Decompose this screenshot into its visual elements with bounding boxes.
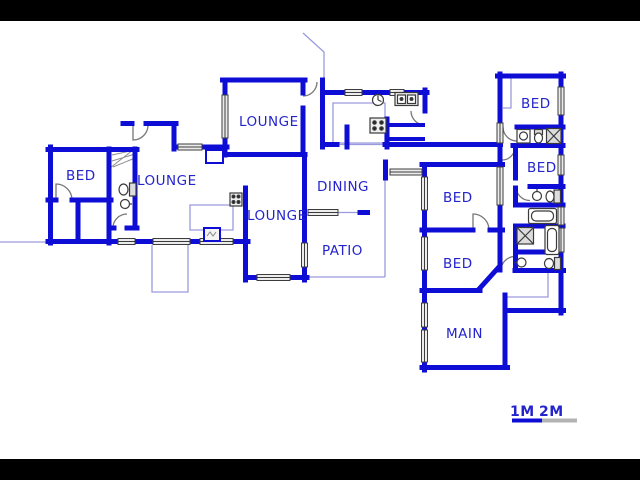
vanity-basin-icon (517, 130, 530, 144)
hob-icon (230, 193, 242, 206)
room-label-bed-right-lower: BED (527, 160, 557, 176)
shower-icon (517, 228, 534, 245)
room-label-bed-center-lower: BED (443, 256, 473, 272)
scale-label-2m: 2M (539, 404, 564, 420)
kitchen-counter-walls (390, 125, 423, 139)
basin-icon (121, 200, 133, 209)
window-glyph (153, 239, 190, 245)
top-letterbox (0, 0, 640, 21)
window-glyph (558, 155, 564, 175)
window-glyph (345, 90, 362, 96)
kitchen-tap-icon (373, 95, 384, 106)
room-label-bed-left: BED (66, 168, 96, 184)
room-label-patio: PATIO (322, 243, 363, 259)
room-label-lounge-center: LOUNGE (247, 208, 307, 224)
entry-hall-walls (123, 124, 227, 150)
window-glyph (422, 237, 428, 270)
window-glyph (178, 144, 202, 150)
bottom-letterbox (0, 459, 640, 480)
window-glyph (257, 275, 290, 281)
scale-bar: 1M 2M (510, 404, 577, 423)
double-sink-icon (395, 93, 418, 106)
room-label-main: MAIN (446, 326, 483, 342)
window-glyph (558, 87, 564, 115)
room-label-lounge-top: LOUNGE (239, 114, 299, 130)
window-glyph (497, 123, 503, 143)
window-glyph (558, 207, 564, 225)
window-glyph (390, 169, 422, 175)
toilet-icon (119, 183, 136, 196)
window-glyph (308, 210, 338, 216)
room-label-dining: DINING (317, 179, 369, 195)
window-glyph (497, 167, 503, 205)
scale-label-1m: 1M (510, 404, 535, 420)
cupboard-icon (206, 150, 223, 163)
basin-icon (533, 189, 542, 201)
window-glyph (118, 239, 135, 245)
stairs-glyph (110, 150, 135, 168)
window-glyph (222, 95, 228, 138)
scale-segment-1m (512, 419, 542, 423)
scale-segment-2m (542, 419, 577, 423)
bathtub-icon (545, 226, 559, 255)
toilet-icon (546, 190, 561, 203)
floorplan-drawing: BED LOUNGE LOUNGE LOUNGE DINING PATIO BE… (0, 0, 640, 480)
toilet-icon (545, 258, 561, 270)
shower-icon (547, 129, 562, 144)
room-label-bed-center-upper: BED (443, 190, 473, 206)
window-glyph (422, 177, 428, 210)
window-glyph (302, 243, 308, 267)
window-glyph (422, 303, 428, 327)
windows (118, 87, 564, 362)
room-label-lounge-left: LOUNGE (137, 173, 197, 189)
fireplace-icon (204, 228, 220, 241)
bathtub-icon (529, 209, 557, 224)
toilet-icon (535, 130, 543, 144)
stove-icon (370, 118, 386, 133)
room-label-bed-right-upper: BED (521, 96, 551, 112)
screenshot-stage: BED LOUNGE LOUNGE LOUNGE DINING PATIO BE… (0, 0, 640, 480)
window-glyph (422, 330, 428, 362)
